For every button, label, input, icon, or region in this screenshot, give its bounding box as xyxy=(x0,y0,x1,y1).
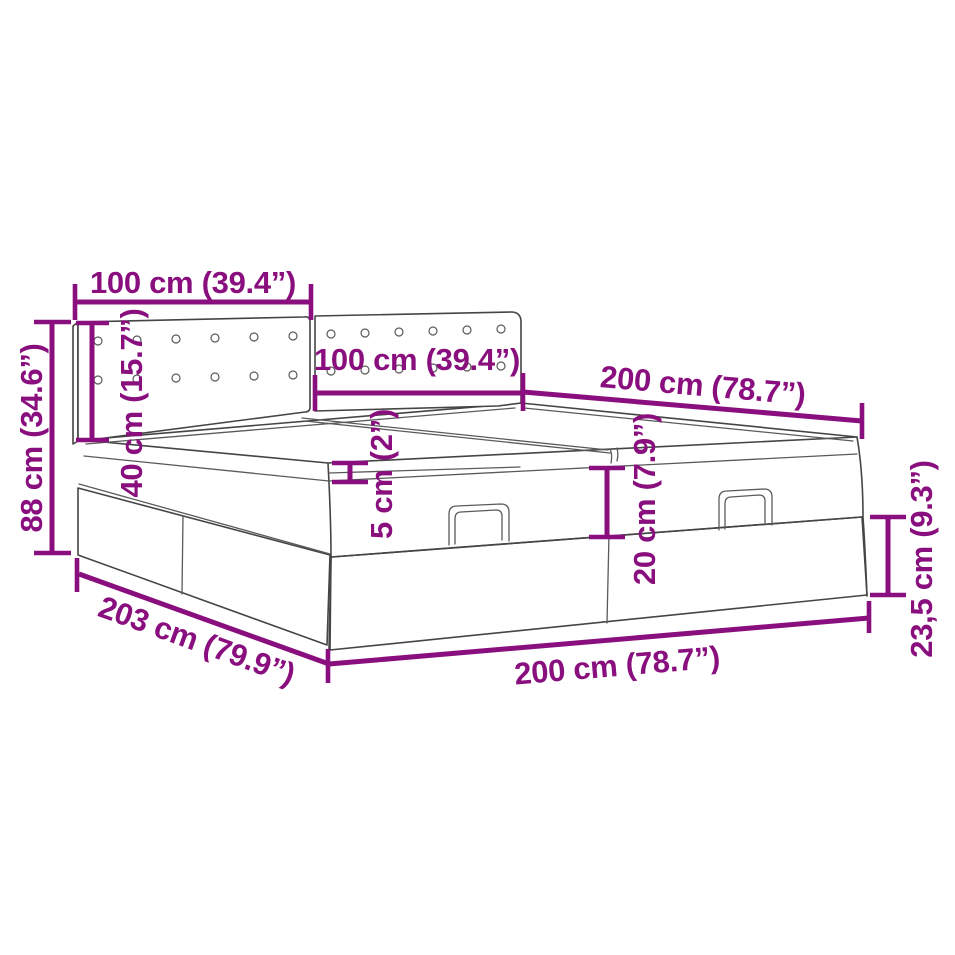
button xyxy=(211,373,219,381)
button xyxy=(497,325,505,333)
dim-label: 200 cm (78.7”) xyxy=(599,359,807,412)
dim-total-height: 88 cm (34.6”) xyxy=(14,322,71,553)
button xyxy=(94,337,102,345)
button xyxy=(94,376,102,384)
dim-label: 5 cm (2”) xyxy=(364,409,399,539)
button xyxy=(429,327,437,335)
dim-label: 40 cm (15.7”) xyxy=(114,308,149,497)
headboard-panel-left xyxy=(78,317,310,441)
button xyxy=(172,374,180,382)
button xyxy=(361,329,369,337)
dim-label: 20 cm (7.9”) xyxy=(627,413,662,585)
dim-label: 88 cm (34.6”) xyxy=(14,343,49,532)
button xyxy=(172,335,180,343)
bed-dimension-diagram: 100 cm (39.4”) 100 cm (39.4”) 200 cm (78… xyxy=(0,0,955,955)
screenshot-canvas: 100 cm (39.4”) 100 cm (39.4”) 200 cm (78… xyxy=(0,0,955,955)
button xyxy=(211,334,219,342)
button xyxy=(250,372,258,380)
button xyxy=(250,333,258,341)
dim-headboard-panel-left-width: 100 cm (39.4”) xyxy=(75,265,311,320)
button xyxy=(463,326,471,334)
button xyxy=(289,332,297,340)
button xyxy=(327,330,335,338)
button xyxy=(395,328,403,336)
dim-label: 100 cm (39.4”) xyxy=(314,342,520,377)
button xyxy=(289,371,297,379)
dim-label: 23,5 cm (9.3”) xyxy=(904,460,939,657)
dim-label: 100 cm (39.4”) xyxy=(90,265,296,300)
dim-frame-height: 23,5 cm (9.3”) xyxy=(870,460,939,657)
